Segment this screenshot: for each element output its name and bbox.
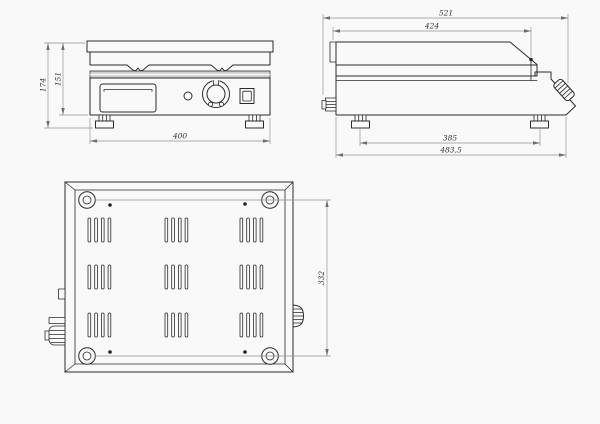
thermostat-knob-side [553,78,576,102]
foot-right [246,115,264,128]
foot-left [96,115,114,128]
vent-slot-group [165,313,188,337]
dim-label-width: 400 [172,132,188,141]
bottom-view: 332 [45,182,331,372]
knob-bottom-view [293,305,304,327]
grease-channel-band [90,71,270,78]
side-view-dimensions: 521 424 385 483,5 [323,9,568,159]
thermostat-knob [203,79,230,108]
dim-label-overall-length: 521 [439,9,453,18]
splash-guard-notched-band [90,52,270,71]
cable-gland-side [322,98,336,111]
side-view: 521 424 385 483,5 [322,9,576,159]
power-switch [240,89,254,104]
bottom-view-dimensions: 332 [95,200,331,356]
base-outer-panel [65,182,293,372]
griddle-plate-edge [87,41,273,52]
cable-gland-bottom-view [45,326,65,345]
foot-bottom-view [79,192,96,209]
dim-label-body-height: 151 [54,72,63,86]
body-side [336,72,576,115]
dim-label-feet-spacing-depth: 332 [317,271,326,286]
foot-rear [352,115,370,128]
front-view-dimensions: 174 151 400 [39,43,271,144]
screw-dots [108,202,247,354]
rear-tab [59,289,66,299]
grease-drawer [100,84,156,112]
vent-slot-group [88,265,111,289]
griddle-plate-side [336,65,537,76]
vent-slot-group [240,265,263,289]
terminal-tab [49,318,65,324]
ventilation-slots [88,218,263,337]
foot-front [531,115,549,128]
drain-pin [529,58,532,81]
dim-label-feet-spacing: 385 [443,134,458,143]
dim-label-base-length: 483,5 [439,146,462,155]
corner-seams [65,182,293,372]
vent-slot-group [165,265,188,289]
vent-slot-group [88,313,111,337]
vent-slot-group [240,218,263,242]
technical-drawing-sheet: 174 151 400 [0,0,600,424]
griddle-three-view-drawing: 174 151 400 [0,0,600,424]
splash-guard-tab [330,42,336,62]
dim-label-top-length: 424 [424,22,440,31]
splash-guard-side [336,42,537,65]
front-view: 174 151 400 [39,41,274,144]
vent-slot-group [88,218,111,242]
vent-slot-group [240,313,263,337]
foot-bottom-view [79,348,96,365]
dim-label-total-height: 174 [39,78,48,93]
vent-slot-group [165,218,188,242]
indicator-light [184,92,192,100]
